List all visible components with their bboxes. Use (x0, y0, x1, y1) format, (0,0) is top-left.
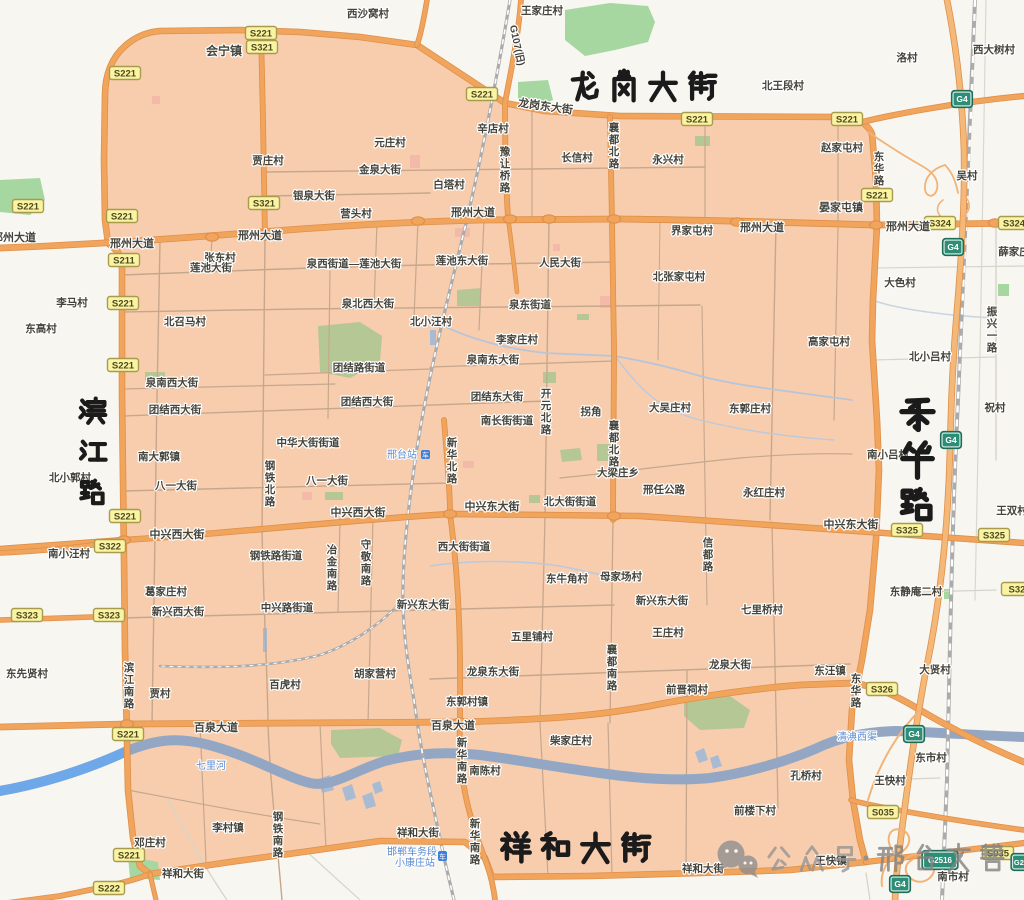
svg-text:辛店村: 辛店村 (477, 122, 509, 135)
svg-text:路: 路 (327, 579, 338, 592)
svg-text:王双村: 王双村 (996, 504, 1024, 517)
svg-text:S324: S324 (929, 218, 952, 229)
svg-text:铁: 铁 (273, 822, 284, 835)
svg-text:白塔村: 白塔村 (433, 178, 465, 191)
svg-text:华: 华 (851, 684, 862, 697)
svg-text:S221: S221 (117, 729, 140, 740)
svg-text:钢: 钢 (265, 459, 276, 472)
svg-text:邢州大道: 邢州大道 (450, 205, 495, 219)
svg-text:莲池东大街: 莲池东大街 (436, 254, 489, 267)
svg-text:襄: 襄 (608, 121, 620, 134)
svg-text:中兴东大街: 中兴东大街 (465, 499, 520, 513)
svg-text:南: 南 (470, 841, 481, 854)
svg-text:兴: 兴 (987, 317, 998, 330)
svg-text:南: 南 (457, 760, 468, 773)
svg-text:中兴西大街: 中兴西大街 (331, 505, 386, 519)
svg-text:G4: G4 (908, 729, 920, 739)
svg-text:祝村: 祝村 (985, 401, 1006, 414)
svg-text:钢铁路街道: 钢铁路街道 (250, 549, 303, 562)
svg-text:S221: S221 (836, 114, 859, 125)
svg-text:S323: S323 (16, 610, 38, 621)
svg-text:大吴庄村: 大吴庄村 (649, 401, 691, 414)
svg-text:路: 路 (361, 574, 372, 587)
svg-text:S035: S035 (872, 807, 895, 818)
svg-text:祥和大街: 祥和大街 (397, 826, 439, 839)
svg-text:S221: S221 (111, 211, 134, 222)
svg-text:百泉大道: 百泉大道 (194, 720, 238, 734)
svg-text:王庄村: 王庄村 (652, 626, 684, 639)
svg-text:南大郭镇: 南大郭镇 (138, 450, 180, 463)
svg-text:G4: G4 (956, 94, 968, 104)
svg-text:S222: S222 (98, 883, 120, 894)
svg-text:东市村: 东市村 (915, 751, 947, 764)
svg-text:邢州大道: 邢州大道 (885, 219, 930, 233)
svg-text:北小汪村: 北小汪村 (410, 315, 452, 328)
svg-text:南小汪村: 南小汪村 (48, 547, 90, 560)
svg-text:守: 守 (361, 538, 372, 551)
svg-text:银泉大街: 银泉大街 (293, 189, 335, 202)
svg-text:都: 都 (702, 548, 714, 561)
svg-text:中华大街街道: 中华大街街道 (277, 436, 340, 449)
svg-text:永兴村: 永兴村 (651, 153, 684, 166)
svg-text:北张家屯村: 北张家屯村 (653, 270, 706, 283)
svg-text:东牛角村: 东牛角村 (546, 572, 588, 585)
svg-text:贾庄村: 贾庄村 (252, 154, 284, 167)
svg-text:南: 南 (273, 834, 284, 847)
svg-text:北王段村: 北王段村 (762, 79, 804, 92)
svg-text:路: 路 (703, 560, 714, 573)
svg-text:邯郸车务段: 邯郸车务段 (387, 845, 437, 858)
svg-text:路: 路 (607, 679, 618, 692)
svg-text:都: 都 (606, 655, 618, 668)
svg-text:S221: S221 (114, 511, 137, 522)
svg-text:龙泉大街: 龙泉大街 (708, 658, 751, 671)
svg-text:东郭村镇: 东郭村镇 (446, 695, 488, 708)
svg-text:营头村: 营头村 (340, 207, 372, 220)
svg-text:开: 开 (541, 388, 552, 400)
svg-text:祥和大街: 祥和大街 (162, 867, 204, 880)
svg-text:路: 路 (470, 853, 481, 866)
svg-text:冶: 冶 (327, 543, 338, 556)
svg-text:七里桥村: 七里桥村 (741, 603, 783, 616)
svg-text:东: 东 (874, 150, 885, 163)
svg-text:百泉大道: 百泉大道 (431, 718, 475, 732)
svg-text:G25: G25 (1014, 858, 1024, 867)
svg-text:路: 路 (124, 697, 135, 710)
svg-text:八一大街: 八一大街 (154, 479, 197, 492)
svg-text:邢任公路: 邢任公路 (642, 483, 685, 496)
svg-text:中兴东大街: 中兴东大街 (824, 517, 879, 531)
svg-text:路: 路 (273, 846, 284, 859)
svg-text:S221: S221 (17, 201, 40, 212)
svg-text:S32: S32 (1009, 584, 1024, 595)
svg-text:团结路街道: 团结路街道 (333, 361, 386, 374)
svg-text:王家庄村: 王家庄村 (521, 4, 563, 17)
svg-text:东汪镇: 东汪镇 (814, 664, 846, 677)
svg-text:人民大街: 人民大街 (539, 256, 581, 269)
svg-text:晏家屯镇: 晏家屯镇 (819, 200, 863, 214)
svg-text:路: 路 (265, 495, 276, 508)
svg-text:邢州大道: 邢州大道 (109, 236, 154, 250)
svg-text:百虎村: 百虎村 (269, 678, 301, 691)
svg-text:都: 都 (608, 431, 620, 444)
svg-text:S321: S321 (253, 198, 276, 209)
svg-text:中兴路街道: 中兴路街道 (261, 601, 314, 614)
svg-text:前晋祠村: 前晋祠村 (666, 683, 708, 696)
svg-text:S323: S323 (98, 610, 120, 621)
svg-text:金泉大街: 金泉大街 (358, 163, 401, 176)
svg-text:大色村: 大色村 (884, 276, 916, 289)
svg-text:北: 北 (609, 145, 620, 158)
svg-text:界家屯村: 界家屯村 (671, 224, 713, 237)
svg-text:路: 路 (851, 696, 862, 709)
svg-text:S221: S221 (471, 89, 494, 100)
svg-text:振: 振 (987, 305, 998, 318)
svg-text:路: 路 (609, 455, 620, 468)
svg-text:孔桥村: 孔桥村 (790, 769, 822, 782)
svg-text:母家场村: 母家场村 (600, 570, 642, 583)
svg-text:东静庵二村: 东静庵二村 (890, 585, 943, 598)
svg-text:金: 金 (326, 555, 338, 568)
svg-text:豫: 豫 (500, 145, 511, 158)
svg-text:小康庄站: 小康庄站 (395, 856, 435, 869)
svg-text:东郭庄村: 东郭庄村 (729, 402, 771, 415)
svg-text:北小吕村: 北小吕村 (909, 350, 951, 363)
svg-text:新: 新 (470, 817, 481, 830)
svg-text:新: 新 (447, 436, 458, 449)
svg-text:邢州大道: 邢州大道 (237, 228, 282, 242)
svg-text:路: 路 (874, 174, 885, 187)
svg-text:洛村: 洛村 (897, 51, 918, 64)
svg-text:S221: S221 (114, 68, 137, 79)
svg-text:南: 南 (607, 667, 618, 680)
svg-text:七里河: 七里河 (196, 760, 226, 772)
svg-text:S221: S221 (866, 190, 889, 201)
svg-text:北召马村: 北召马村 (164, 315, 206, 328)
svg-text:路: 路 (609, 157, 620, 170)
svg-text:S221: S221 (112, 298, 135, 309)
svg-text:南长街街道: 南长街街道 (481, 414, 534, 427)
svg-text:薛家庄: 薛家庄 (998, 245, 1024, 258)
svg-text:S326: S326 (871, 684, 893, 695)
svg-text:S221: S221 (118, 850, 141, 861)
svg-text:北: 北 (447, 460, 458, 473)
svg-text:元: 元 (541, 400, 552, 412)
svg-text:滨: 滨 (124, 661, 135, 674)
svg-text:西大树村: 西大树村 (973, 43, 1015, 56)
svg-text:胡家营村: 胡家营村 (354, 667, 396, 680)
svg-text:S322: S322 (99, 541, 121, 552)
svg-text:莲池大街: 莲池大街 (190, 261, 232, 274)
svg-text:元庄村: 元庄村 (374, 136, 406, 149)
svg-text:大贤村: 大贤村 (919, 663, 951, 676)
svg-text:北大街街道: 北大街街道 (544, 495, 597, 508)
svg-text:会宁镇: 会宁镇 (206, 43, 242, 58)
svg-text:S211: S211 (113, 255, 135, 266)
svg-text:桥: 桥 (500, 169, 511, 182)
svg-text:西沙窝村: 西沙窝村 (347, 7, 389, 20)
svg-text:清淟西渠: 清淟西渠 (837, 730, 877, 743)
svg-text:S325: S325 (896, 525, 919, 536)
svg-text:李马村: 李马村 (55, 296, 88, 309)
svg-text:李村镇: 李村镇 (211, 821, 244, 834)
svg-text:华: 华 (457, 748, 468, 761)
svg-text:拐角: 拐角 (581, 405, 602, 418)
svg-text:贾村: 贾村 (150, 687, 171, 700)
svg-text:让: 让 (500, 157, 511, 170)
svg-text:新兴东大街: 新兴东大街 (397, 598, 450, 611)
svg-text:江: 江 (124, 673, 135, 686)
svg-text:南陈村: 南陈村 (469, 764, 501, 777)
svg-text:南市村: 南市村 (937, 870, 969, 883)
svg-text:葛家庄村: 葛家庄村 (144, 585, 187, 598)
svg-text:前楼下村: 前楼下村 (734, 804, 776, 817)
svg-text:G4: G4 (947, 242, 959, 252)
svg-text:泉东街道: 泉东街道 (508, 298, 551, 311)
svg-text:五里铺村: 五里铺村 (511, 630, 553, 643)
svg-text:泉西街道—莲池大街: 泉西街道—莲池大街 (306, 257, 402, 270)
svg-text:信: 信 (703, 536, 714, 549)
svg-text:新兴西大街: 新兴西大街 (152, 605, 205, 618)
svg-text:S221: S221 (250, 28, 273, 39)
svg-text:南: 南 (124, 685, 135, 698)
svg-text:G4: G4 (894, 879, 906, 889)
svg-text:车: 车 (439, 852, 446, 861)
svg-text:永红庄村: 永红庄村 (742, 486, 785, 499)
svg-text:王快村: 王快村 (874, 774, 906, 787)
svg-text:邓庄村: 邓庄村 (133, 836, 166, 849)
svg-text:路: 路 (987, 341, 998, 354)
svg-text:西大街街道: 西大街街道 (438, 540, 491, 553)
svg-text:邢州大道: 邢州大道 (0, 230, 36, 244)
svg-text:钢: 钢 (273, 810, 284, 823)
svg-text:路: 路 (500, 181, 511, 194)
svg-text:S221: S221 (112, 360, 135, 371)
svg-text:南: 南 (327, 567, 338, 580)
svg-text:敬: 敬 (360, 550, 372, 563)
svg-text:龙泉东大街: 龙泉东大街 (466, 665, 520, 678)
svg-text:车: 车 (422, 451, 429, 460)
svg-text:都: 都 (608, 133, 620, 146)
svg-text:华: 华 (470, 829, 481, 842)
svg-text:路: 路 (447, 472, 458, 485)
svg-text:S221: S221 (686, 114, 709, 125)
svg-text:S324: S324 (1003, 218, 1024, 229)
svg-text:S325: S325 (983, 530, 1006, 541)
svg-text:李家庄村: 李家庄村 (495, 333, 538, 346)
svg-text:长信村: 长信村 (561, 151, 593, 164)
svg-text:北: 北 (609, 443, 620, 456)
svg-text:东: 东 (851, 672, 862, 685)
svg-text:南: 南 (361, 562, 372, 575)
svg-text:泉北西大街: 泉北西大街 (341, 297, 395, 310)
svg-text:东高村: 东高村 (25, 322, 57, 335)
svg-text:路: 路 (457, 772, 468, 785)
svg-text:八一大街: 八一大街 (305, 474, 348, 487)
svg-text:华: 华 (874, 162, 885, 175)
svg-text:泉南西大街: 泉南西大街 (145, 376, 199, 389)
svg-text:邢台站: 邢台站 (387, 448, 417, 461)
svg-text:吴村: 吴村 (957, 169, 978, 182)
svg-text:团结西大街: 团结西大街 (149, 403, 202, 416)
svg-text:东先贤村: 东先贤村 (6, 667, 48, 680)
svg-text:团结东大街: 团结东大街 (471, 390, 524, 403)
svg-text:邢州大道: 邢州大道 (739, 220, 784, 234)
svg-text:北: 北 (265, 483, 276, 496)
svg-text:新: 新 (457, 736, 468, 749)
svg-text:北: 北 (541, 411, 552, 424)
svg-text:襄: 襄 (608, 419, 620, 432)
svg-text:S321: S321 (251, 42, 274, 53)
svg-text:中兴西大街: 中兴西大街 (150, 527, 205, 541)
svg-text:祥和大街: 祥和大街 (682, 862, 724, 875)
svg-text:华: 华 (447, 448, 458, 461)
svg-text:团结西大街: 团结西大街 (341, 395, 394, 408)
svg-text:襄: 襄 (606, 643, 618, 656)
svg-text:G4: G4 (945, 435, 957, 445)
svg-text:新兴东大街: 新兴东大街 (636, 594, 689, 607)
svg-text:高家屯村: 高家屯村 (808, 335, 850, 348)
svg-text:赵家屯村: 赵家屯村 (820, 141, 863, 154)
svg-text:铁: 铁 (265, 471, 276, 484)
svg-text:泉南东大街: 泉南东大街 (466, 353, 520, 366)
svg-text:柴家庄村: 柴家庄村 (549, 734, 592, 747)
svg-text:路: 路 (541, 423, 552, 436)
svg-text:一: 一 (987, 330, 998, 342)
